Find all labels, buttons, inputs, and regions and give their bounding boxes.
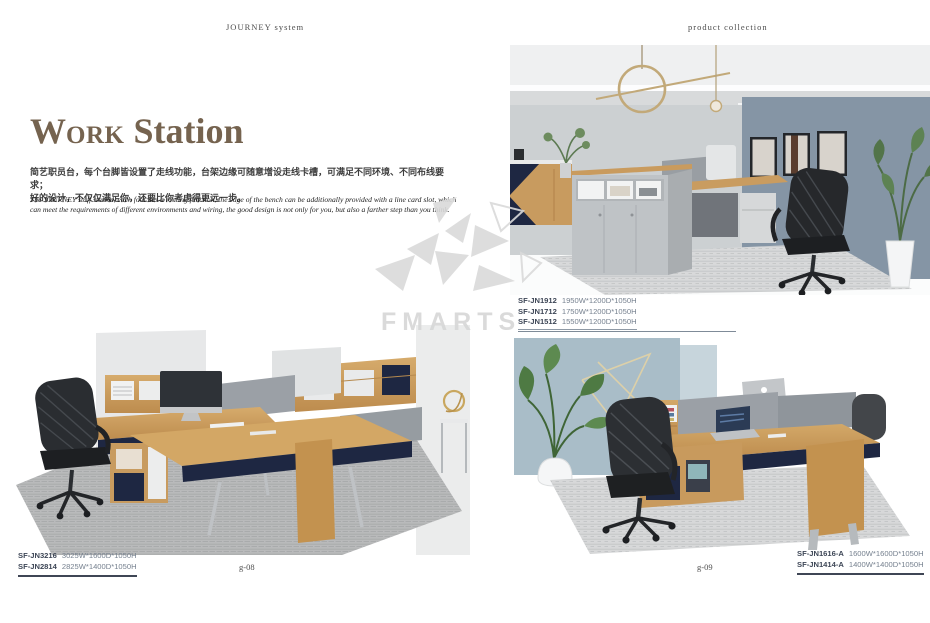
product-code-row: SF-JN1414-A1400W*1400D*1050H [797, 560, 924, 571]
title-smallcaps: ORK [66, 122, 124, 149]
product-dimensions: 1600W*1600D*1050H [849, 549, 924, 558]
bottom-right-photo-illustration [510, 338, 930, 555]
product-dimensions: 3025W*1600D*1050H [62, 551, 137, 560]
left-page-product-photo [10, 323, 470, 557]
product-dimensions: 1550W*1200D*1050H [562, 317, 637, 326]
left-wood-cabinet [510, 149, 572, 225]
product-model: SF-JN1616-A [797, 549, 844, 558]
product-model: SF-JN1912 [518, 296, 557, 305]
right-page-top-photo [510, 45, 930, 295]
product-model: SF-JN3216 [18, 551, 57, 560]
top-right-photo-illustration [510, 45, 930, 295]
catalog-spread: JOURNEY system product collection WORK S… [0, 0, 930, 623]
product-dimensions: 2825W*1400D*1050H [62, 562, 137, 571]
page-number-right: g-09 [697, 562, 713, 572]
product-dimensions: 1750W*1200D*1050H [562, 307, 637, 316]
product-dimensions: 1950W*1200D*1050H [562, 296, 637, 305]
product-code-row: SF-JN32163025W*1600D*1050H [18, 551, 137, 562]
description-chinese-line1: 简艺职员台，每个台脚皆设置了走线功能，台架边缘可随意增设走线卡槽，可满足不同环境… [30, 166, 460, 192]
product-model: SF-JN2814 [18, 562, 57, 571]
laptop-logo [761, 387, 767, 393]
title-initial: W [30, 111, 66, 151]
page-number-left: g-08 [239, 562, 255, 572]
product-dimensions: 1400W*1400D*1050H [849, 560, 924, 569]
product-code-row: SF-JN1616-A1600W*1600D*1050H [797, 549, 924, 560]
product-codes-right-bottom: SF-JN1616-A1600W*1600D*1050H SF-JN1414-A… [797, 549, 924, 575]
header-series-name: JOURNEY system [226, 22, 304, 32]
product-codes-left-page: SF-JN32163025W*1600D*1050H SF-JN28142825… [18, 551, 137, 577]
divider-rule [518, 331, 736, 332]
grey-counter-cabinet [572, 164, 692, 275]
title-second-word: Station [124, 111, 243, 151]
product-code-row: SF-JN15121550W*1200D*1050H [518, 317, 637, 330]
product-code-row: SF-JN19121950W*1200D*1050H [518, 296, 637, 307]
product-model: SF-JN1512 [518, 317, 557, 326]
product-code-row: SF-JN17121750W*1200D*1050H [518, 307, 637, 318]
header-collection-name: product collection [688, 22, 768, 32]
page-title: WORK Station [30, 110, 243, 152]
product-code-row: SF-JN28142825W*1400D*1050H [18, 562, 137, 573]
product-codes-right-top: SF-JN19121950W*1200D*1050H SF-JN17121750… [518, 296, 637, 330]
product-model: SF-JN1712 [518, 307, 557, 316]
product-model: SF-JN1414-A [797, 560, 844, 569]
right-page-bottom-photo [510, 338, 930, 555]
description-english: The JOURNEY staff station, each foot has… [30, 195, 467, 215]
left-photo-illustration [10, 323, 470, 557]
